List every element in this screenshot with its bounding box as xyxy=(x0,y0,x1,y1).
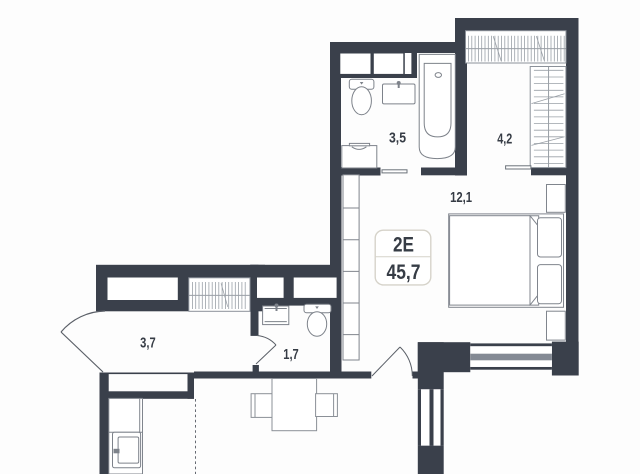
svg-text:3,7: 3,7 xyxy=(140,335,156,352)
svg-text:3,5: 3,5 xyxy=(389,130,406,147)
svg-text:1,7: 1,7 xyxy=(283,346,299,363)
svg-text:4,2: 4,2 xyxy=(497,131,512,148)
svg-text:45,7: 45,7 xyxy=(387,261,421,284)
svg-text:2E: 2E xyxy=(393,234,414,257)
svg-text:12,1: 12,1 xyxy=(450,189,472,206)
